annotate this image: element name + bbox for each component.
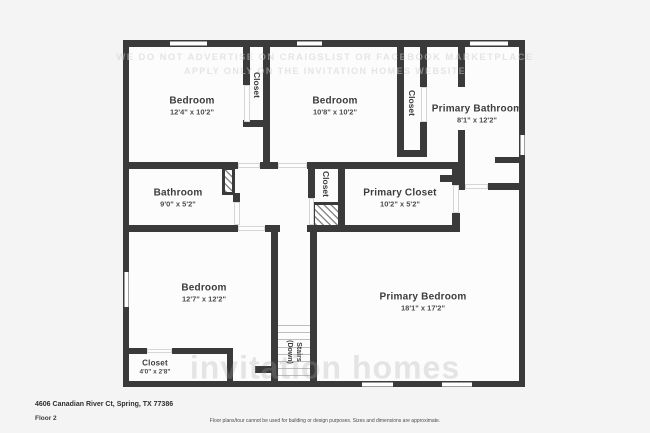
- room-dims: 12'7" x 12'2": [181, 295, 226, 304]
- room-name: Closet: [140, 359, 171, 368]
- wall: [308, 169, 315, 198]
- room-dims: 9'0" x 5'2": [154, 200, 203, 209]
- stair-tread: [278, 325, 310, 326]
- wall: [233, 193, 240, 202]
- wall: [397, 47, 404, 157]
- footer-disclaimer: Floor plans/tour cannot be used for buil…: [0, 418, 650, 424]
- wall: [488, 183, 525, 190]
- door-opening: [465, 184, 488, 189]
- room-dims: 12'4" x 10'2": [169, 108, 214, 117]
- door-opening: [238, 226, 265, 231]
- room-name: Bedroom: [181, 283, 226, 294]
- wall: [307, 162, 460, 169]
- room-name: Primary Closet: [363, 188, 436, 199]
- room-dims: 10'8" x 10'2": [312, 108, 357, 117]
- watermark-line-2: APPLY ONLY ON THE INVITATION HOMES WEBSI…: [184, 66, 466, 76]
- room-name: Bedroom: [169, 96, 214, 107]
- room-dims: 4'0" x 2'8": [140, 369, 171, 376]
- room-label-closet-middle: Closet: [321, 171, 331, 197]
- floor-plan-page: Bedroom 12'4" x 10'2" Bedroom 10'8" x 10…: [0, 0, 650, 433]
- door-opening: [309, 198, 314, 225]
- window: [124, 272, 129, 307]
- wall: [452, 213, 460, 232]
- room-name: Bathroom: [154, 188, 203, 199]
- door-opening: [453, 185, 459, 213]
- door-opening: [234, 202, 240, 225]
- window: [297, 41, 322, 46]
- window: [520, 135, 525, 155]
- window: [470, 41, 508, 46]
- stair-tread: [278, 332, 310, 333]
- wall: [123, 40, 129, 387]
- door-opening: [421, 87, 427, 122]
- room-label-bedroom-2: Bedroom 10'8" x 10'2": [312, 96, 357, 117]
- wall: [519, 40, 525, 387]
- door-opening: [238, 163, 260, 168]
- footer-address: 4606 Canadian River Ct, Spring, TX 77386: [35, 401, 173, 408]
- wall: [129, 225, 238, 232]
- wall: [129, 162, 238, 169]
- window: [170, 41, 207, 46]
- wall: [495, 157, 525, 163]
- door-opening: [278, 163, 307, 168]
- room-dims: 10'2" x 5'2": [363, 200, 436, 209]
- watermark-brand: invitation homes: [190, 350, 460, 387]
- watermark-line-1: WE DO NOT ADVERTISE ON CRAIGSLIST OR FAC…: [116, 52, 533, 63]
- room-label-closet-small: Closet 4'0" x 2'8": [140, 359, 171, 376]
- room-label-bedroom-3: Bedroom 12'7" x 12'2": [181, 283, 226, 304]
- room-dims: 8'1" x 12'2": [432, 116, 522, 125]
- room-label-primary-closet: Primary Closet 10'2" x 5'2": [363, 188, 436, 209]
- room-label-primary-bathroom: Primary Bathroom 8'1" x 12'2": [432, 104, 522, 125]
- wall: [452, 169, 460, 185]
- room-name: Primary Bathroom: [432, 104, 522, 115]
- room-dims: 18'1" x 17'2": [380, 304, 467, 313]
- wall: [129, 348, 147, 354]
- room-name: Bedroom: [312, 96, 357, 107]
- room-label-bathroom: Bathroom 9'0" x 5'2": [154, 188, 203, 209]
- room-label-bedroom-1: Bedroom 12'4" x 10'2": [169, 96, 214, 117]
- room-name: Primary Bedroom: [380, 292, 467, 303]
- room-label-primary-bedroom: Primary Bedroom 18'1" x 17'2": [380, 292, 467, 313]
- room-label-closet-top-right: Closet: [407, 90, 417, 116]
- wall: [397, 150, 427, 157]
- wall: [307, 225, 460, 232]
- wall: [338, 169, 345, 225]
- hatch-chase: [222, 167, 235, 195]
- door-opening: [244, 85, 250, 122]
- door-opening: [147, 349, 172, 353]
